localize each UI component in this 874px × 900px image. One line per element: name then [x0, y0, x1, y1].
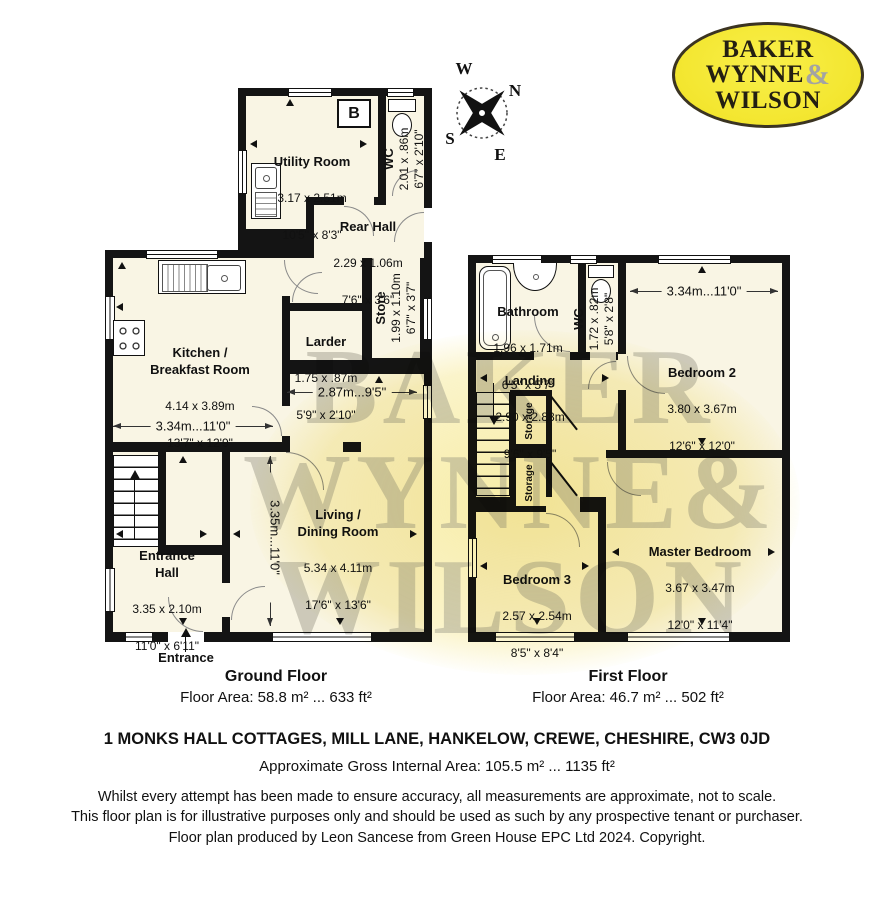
dimension-tick: [250, 140, 257, 148]
dimension-tick: [116, 303, 123, 311]
room-label-living-dining: Living / Dining Room 5.34 x 4.11m 17'6" …: [298, 486, 379, 634]
window: [570, 255, 597, 264]
boiler-unit: B: [337, 99, 371, 128]
room-label-wc-ground: WC 2.01 x .86m 6'7" x 2'10": [381, 111, 427, 207]
property-address: 1 MONKS HALL COTTAGES, MILL LANE, HANKEL…: [0, 730, 874, 749]
room-label-bedroom3: Bedroom 3 2.57 x 2.54m 8'5" x 8'4": [502, 551, 571, 682]
disclaimer-line2: This floor plan is for illustrative purp…: [0, 809, 874, 825]
floorplan-page: B: [0, 0, 874, 900]
window: [423, 385, 432, 419]
dimension-tick: [286, 99, 294, 106]
door-opening: [546, 497, 580, 512]
back-door-opening: [424, 208, 432, 242]
compass-south: S: [445, 129, 454, 148]
door-opening: [222, 583, 231, 617]
window: [387, 88, 414, 97]
dimension-tick: [768, 548, 775, 556]
dimension-tick: [410, 530, 417, 538]
logo-line2: WYNNE&: [706, 62, 831, 88]
dimension-tick: [480, 562, 487, 570]
hob: [113, 320, 145, 356]
compass-east: E: [494, 145, 505, 162]
window: [468, 538, 477, 578]
disclaimer-line1: Whilst every attempt has been made to en…: [0, 789, 874, 805]
room-label-larder: Larder 1.75 x .87m 5'9" x 2'10": [295, 313, 358, 444]
compass-north: N: [509, 81, 522, 100]
dimension-tick: [582, 562, 589, 570]
first-floor-title: First Floor: [588, 668, 667, 686]
dimension-tick: [612, 548, 619, 556]
room-label-storage1: Storage: [524, 386, 538, 456]
window: [658, 255, 731, 264]
logo-line3: WILSON: [715, 88, 821, 114]
dimension-tick: [375, 376, 383, 383]
dimension-tick: [602, 374, 609, 382]
window: [146, 250, 218, 259]
dimension-tick: [233, 530, 240, 538]
logo-line1: BAKER: [722, 37, 813, 63]
door-opening: [618, 354, 626, 390]
gross-internal-area: Approximate Gross Internal Area: 105.5 m…: [0, 758, 874, 775]
ground-floor-area: Floor Area: 58.8 m² ... 633 ft²: [180, 689, 372, 706]
compass-rose: W N S E: [436, 56, 528, 162]
room-label-wc-first: WC 1.72 x .82m 5'8" x 2'8": [571, 271, 617, 367]
ground-floor-title: Ground Floor: [225, 668, 327, 686]
sink-basin: [207, 265, 241, 291]
room-label-kitchen: Kitchen / Breakfast Room 4.14 x 3.89m 13…: [150, 324, 250, 472]
window: [288, 88, 332, 97]
compass-west: W: [456, 59, 473, 78]
room-label-master-bedroom: Master Bedroom 3.67 x 3.47m 12'0" x 11'4…: [649, 523, 752, 654]
agency-logo: BAKER WYNNE& WILSON: [672, 22, 864, 128]
window: [238, 150, 247, 194]
logo-ampersand: &: [805, 63, 831, 87]
dimension-label: 3.35m...11'0": [268, 473, 283, 603]
room-label-storage2: Storage: [524, 448, 538, 518]
door-opening: [282, 406, 291, 436]
window: [423, 298, 432, 340]
first-floor-area: Floor Area: 46.7 m² ... 502 ft²: [532, 689, 724, 706]
dimension-tick: [118, 262, 126, 269]
boiler-label: B: [348, 105, 360, 123]
producer-credit: Floor plan produced by Leon Sancese from…: [0, 830, 874, 846]
door-opening: [598, 460, 606, 494]
dimension-tick: [116, 530, 123, 538]
dimension-tick: [480, 374, 487, 382]
window: [105, 568, 115, 612]
dimension-tick: [698, 266, 706, 273]
room-label-bedroom2: Bedroom 2 3.80 x 3.67m 12'6" x 12'0": [667, 344, 736, 475]
dimension-label: 3.34m...11'0": [662, 284, 747, 299]
entrance-label: Entrance: [158, 650, 214, 665]
kitchen-sink: [158, 260, 246, 294]
room-label-store: Store 1.99 x 1.10m 6'7" x 3'7": [373, 252, 419, 364]
dimension-tick: [360, 140, 367, 148]
sink-drainer: [162, 264, 208, 292]
